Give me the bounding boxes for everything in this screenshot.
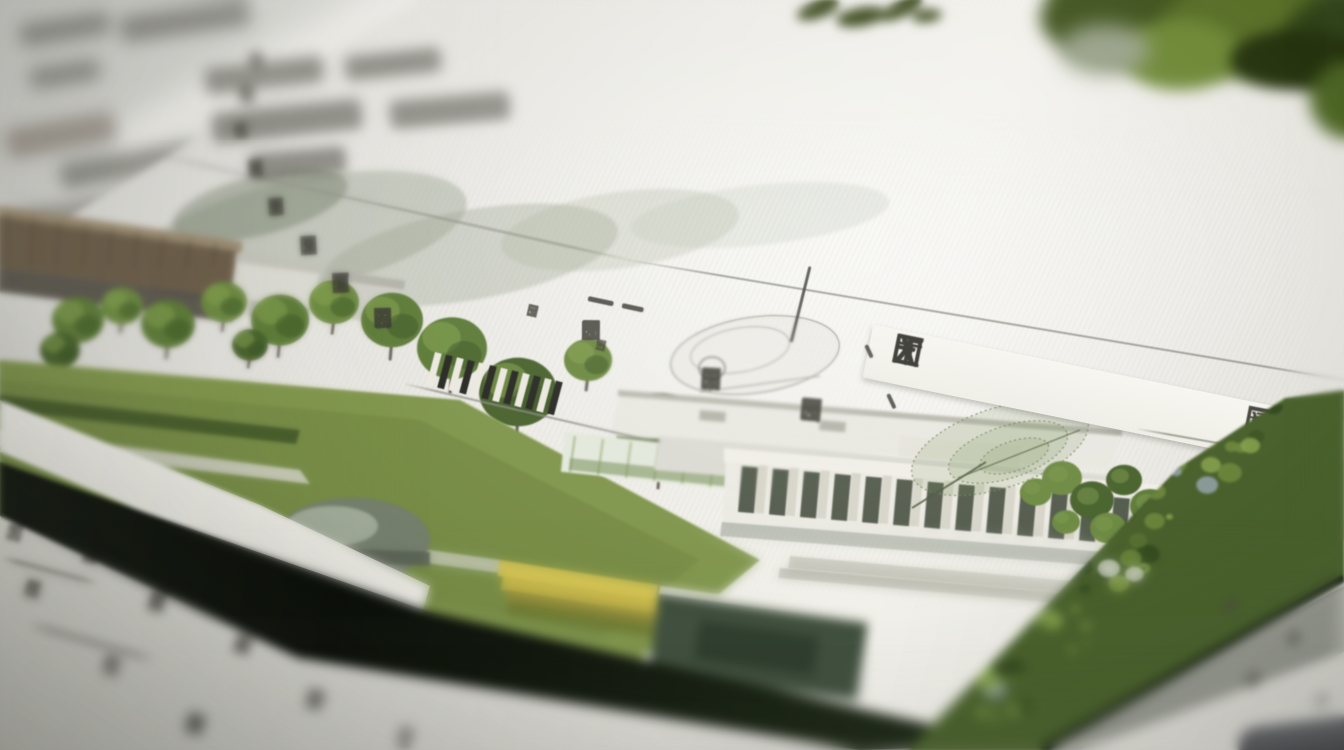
aerial-tree-band: [0, 0, 1344, 750]
photo-canvas: [0, 0, 1344, 750]
aerial-canopy-texture: [908, 302, 1344, 750]
foliage-blob: [1060, 25, 1150, 75]
